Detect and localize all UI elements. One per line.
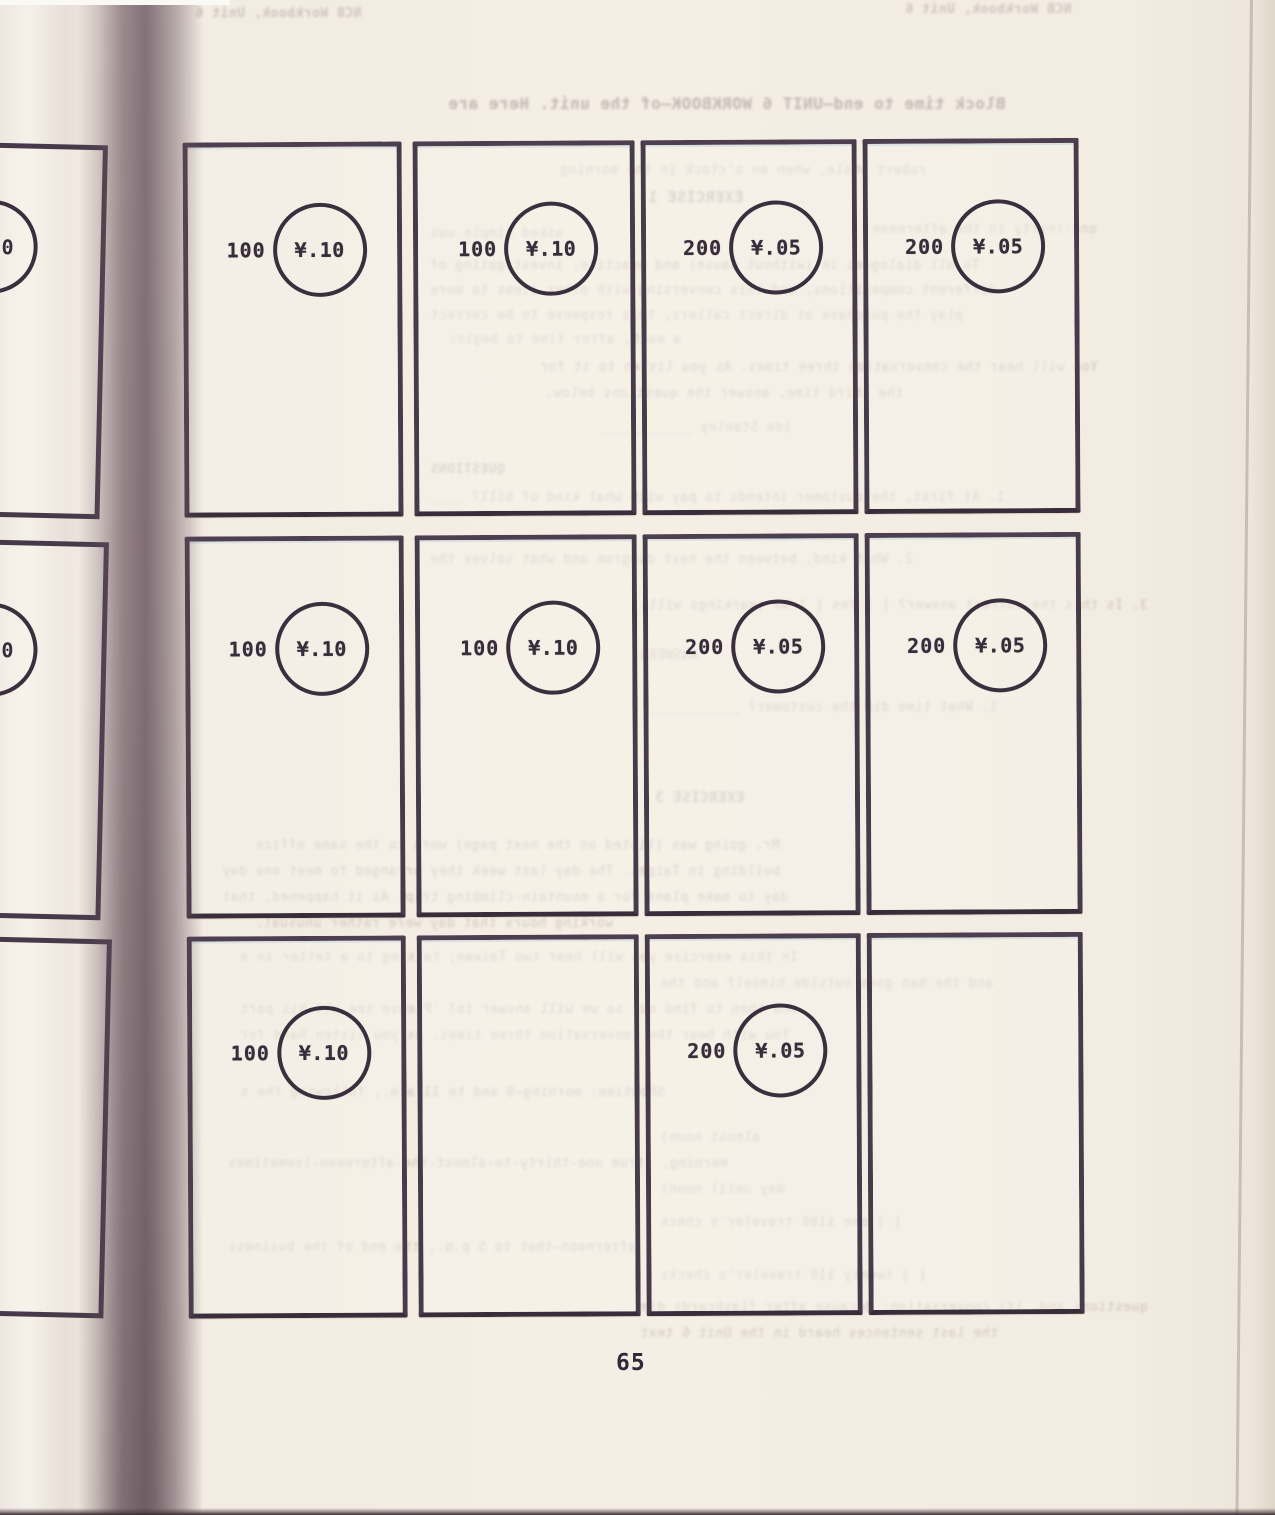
- coin-circle: ¥.05: [731, 599, 825, 693]
- coin-circle: ¥.10: [506, 600, 600, 694]
- flashcard: 100¥.10: [187, 935, 408, 1318]
- coin-count: 100: [458, 237, 497, 261]
- scan-bottom-edge: [0, 1508, 1275, 1515]
- flashcard-blank: [417, 934, 641, 1317]
- coin-value: ¥.10: [528, 636, 578, 660]
- coin-count: 200: [905, 235, 944, 259]
- coin-value: ¥.05: [755, 1038, 805, 1062]
- coin-circle: ¥.10: [275, 602, 369, 696]
- coin-count: 100: [460, 636, 499, 660]
- coin-circle: ¥.10: [504, 201, 598, 295]
- flashcard-grid: 100¥.10 100¥.10 200¥.05 200¥.05 100¥.10 …: [0, 0, 1275, 1515]
- flashcard: 100¥.10: [185, 535, 406, 918]
- flashcard: 200¥.05: [865, 532, 1083, 915]
- coin-count: 200: [683, 236, 722, 260]
- flashcard: 200¥.05: [643, 533, 861, 916]
- coin-value: ¥.10: [299, 1041, 349, 1065]
- scanned-workbook-page: NCB Workbook, Unit 6 NCB Workbook, Unit …: [0, 0, 1275, 1515]
- flashcard: 100¥.10: [415, 534, 639, 917]
- flashcard: 100¥.10: [413, 140, 637, 516]
- coin-value: ¥.05: [975, 633, 1025, 657]
- flashcard: 200¥.05: [645, 933, 863, 1316]
- flashcard: 100¥.10: [183, 141, 404, 517]
- coin-count: 200: [687, 1039, 726, 1063]
- coin-circle: ¥.05: [953, 598, 1047, 692]
- coin-circle: ¥.10: [272, 203, 366, 297]
- coin-count: 100: [229, 637, 268, 661]
- coin-count: 200: [685, 635, 724, 659]
- coin-value: ¥.10: [297, 637, 347, 661]
- page-number: 65: [616, 1350, 646, 1376]
- coin-circle: ¥.05: [733, 1003, 827, 1097]
- coin-circle: ¥.10: [277, 1006, 371, 1100]
- coin-count: 100: [231, 1041, 270, 1065]
- coin-value: ¥.05: [973, 234, 1023, 258]
- coin-count: 100: [226, 238, 265, 262]
- flashcard: 200¥.05: [863, 138, 1081, 514]
- coin-circle: ¥.05: [729, 200, 823, 294]
- page-top-edge-highlight: [0, 0, 230, 5]
- coin-value: ¥.10: [295, 238, 345, 262]
- coin-value: ¥.05: [753, 634, 803, 658]
- coin-count: 200: [907, 634, 946, 658]
- flashcard-blank: [867, 932, 1085, 1315]
- coin-value: ¥.05: [751, 235, 801, 259]
- coin-value: ¥.10: [526, 237, 576, 261]
- flashcard: 200¥.05: [641, 139, 859, 515]
- coin-circle: ¥.05: [951, 199, 1045, 293]
